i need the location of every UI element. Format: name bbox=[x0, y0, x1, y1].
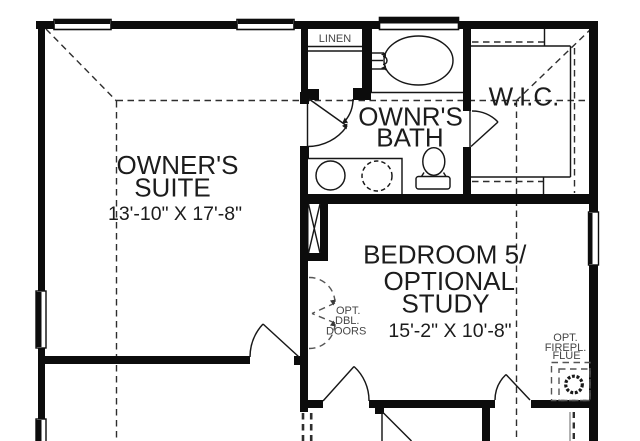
svg-text:15'-2" X 10'-8": 15'-2" X 10'-8" bbox=[388, 320, 511, 342]
svg-text:SUITE: SUITE bbox=[134, 173, 211, 203]
svg-text:BATH: BATH bbox=[376, 123, 443, 153]
svg-text:DOORS: DOORS bbox=[326, 326, 366, 338]
svg-text:STUDY: STUDY bbox=[401, 288, 489, 318]
svg-text:LINEN: LINEN bbox=[319, 33, 351, 45]
svg-text:W.I.C.: W.I.C. bbox=[489, 82, 560, 112]
svg-text:FLUE: FLUE bbox=[552, 350, 580, 362]
svg-text:13'-10" X 17'-8": 13'-10" X 17'-8" bbox=[108, 203, 242, 225]
svg-text:BEDROOM 5/: BEDROOM 5/ bbox=[363, 239, 527, 269]
